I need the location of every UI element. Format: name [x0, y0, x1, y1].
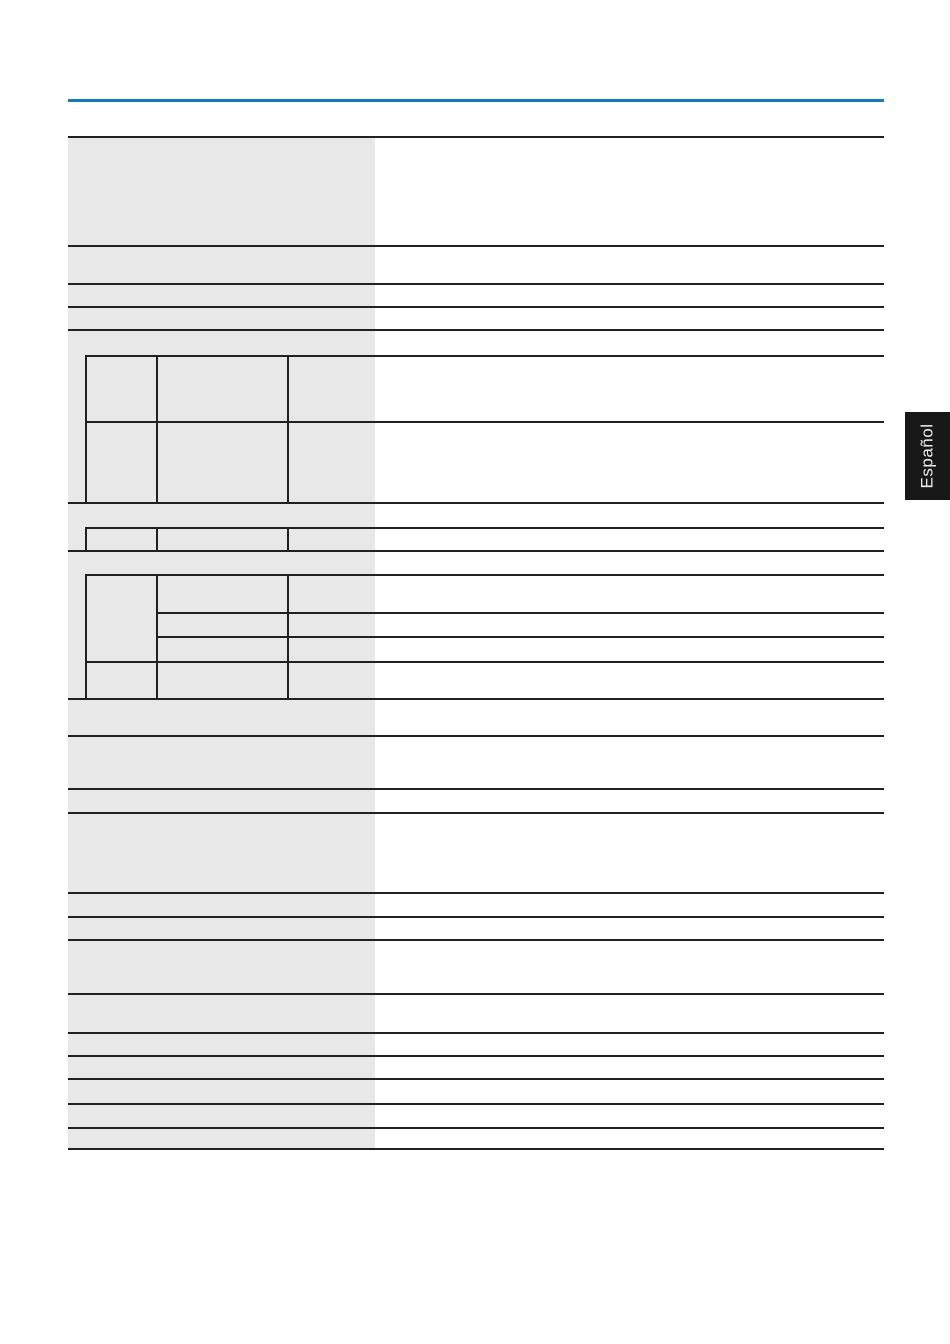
- row-divider: [68, 812, 884, 814]
- section-divider-rule: [68, 99, 884, 102]
- subtable-column-line: [85, 574, 87, 700]
- row-divider: [68, 1055, 884, 1057]
- row-divider: [68, 698, 884, 700]
- subtable-column-line: [85, 355, 87, 504]
- subtable-column-line: [287, 574, 289, 700]
- table-bottom-border: [68, 1148, 884, 1150]
- row-divider: [68, 502, 884, 504]
- subtable-column-line: [287, 355, 289, 504]
- subtable-column-line: [287, 527, 289, 552]
- row-divider: [68, 939, 884, 941]
- subtable-row-divider: [85, 527, 884, 529]
- row-divider: [68, 329, 884, 331]
- row-divider: [68, 788, 884, 790]
- label-column-background: [68, 136, 375, 1150]
- row-divider: [68, 283, 884, 285]
- language-tab-label: Español: [918, 424, 938, 489]
- table-top-border: [68, 136, 884, 138]
- row-divider: [68, 306, 884, 308]
- row-divider: [68, 916, 884, 918]
- row-divider: [68, 550, 884, 552]
- subtable-column-line: [85, 527, 87, 552]
- row-divider: [68, 1078, 884, 1080]
- row-divider: [68, 735, 884, 737]
- subtable-column-line: [156, 527, 158, 552]
- row-divider: [68, 892, 884, 894]
- subtable-column-line: [156, 574, 158, 700]
- subtable-row-divider: [156, 612, 884, 614]
- row-divider: [68, 245, 884, 247]
- row-divider: [68, 1103, 884, 1105]
- row-divider: [68, 993, 884, 995]
- manual-page: Español: [0, 0, 950, 1344]
- subtable-row-divider: [85, 574, 884, 576]
- subtable-column-line: [156, 355, 158, 504]
- subtable-row-divider: [85, 661, 884, 663]
- language-tab-espanol: Español: [905, 412, 950, 500]
- subtable-row-divider: [85, 421, 884, 423]
- subtable-row-divider: [156, 636, 884, 638]
- row-divider: [68, 1127, 884, 1129]
- row-divider: [68, 1032, 884, 1034]
- subtable-row-divider: [85, 355, 884, 357]
